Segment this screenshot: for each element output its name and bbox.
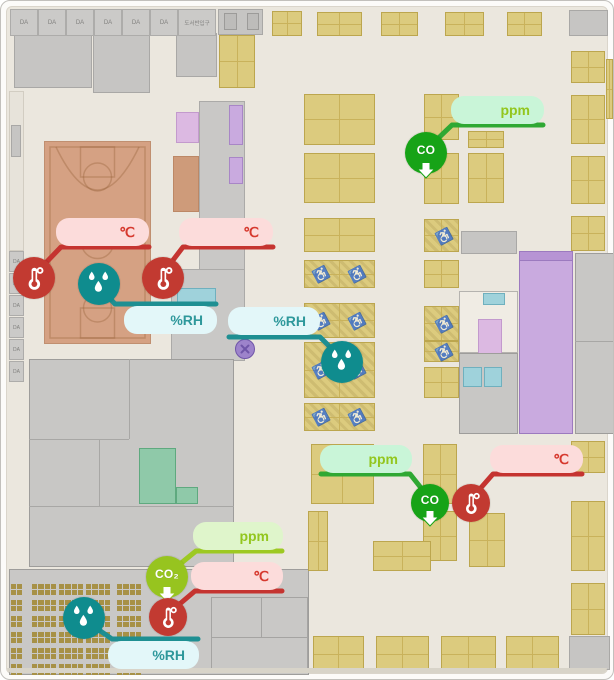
humidity-court-marker[interactable] xyxy=(78,263,120,305)
humidity-drops-icon xyxy=(85,270,113,298)
humidity-court-value-bubble[interactable]: %RH xyxy=(124,306,217,334)
down-arrow-icon xyxy=(420,510,440,527)
thermometer-icon xyxy=(458,490,484,516)
co-reading-room-bottom-marker[interactable]: CO xyxy=(411,484,449,522)
temp-court-right-value-bubble[interactable]: ℃ xyxy=(179,218,273,246)
humidity-reading-room-value-bubble[interactable]: %RH xyxy=(228,307,320,335)
temp-hall-value-bubble[interactable]: ℃ xyxy=(191,562,283,590)
temp-court-left-marker[interactable] xyxy=(13,257,55,299)
co2-hall-marker[interactable]: CO₂ xyxy=(146,556,188,598)
bottom-band xyxy=(7,668,607,673)
co-label: CO xyxy=(417,144,435,156)
humidity-drops-icon xyxy=(328,348,356,376)
floorplan-background: DADADADADADA도서반입구DADPDADADADA ♿♿♿♿♿♿♿♿♿♿… xyxy=(6,6,608,674)
co-label: CO xyxy=(421,494,439,506)
co-reading-room-top-value-bubble[interactable]: ppm xyxy=(451,96,544,124)
co2-label: CO₂ xyxy=(155,568,179,580)
temp-hall-marker[interactable] xyxy=(149,598,187,636)
temp-court-right-marker[interactable] xyxy=(142,257,184,299)
humidity-hall-marker[interactable] xyxy=(63,597,105,639)
thermometer-icon xyxy=(20,264,48,292)
co-reading-room-bottom-value-bubble[interactable]: ppm xyxy=(320,445,412,473)
thermometer-icon xyxy=(149,264,177,292)
co-reading-room-top-marker[interactable]: CO xyxy=(405,132,447,174)
temp-reading-room-bottom-value-bubble[interactable]: ℃ xyxy=(490,445,583,473)
co2-hall-value-bubble[interactable]: ppm xyxy=(193,522,283,550)
temp-court-left-value-bubble[interactable]: ℃ xyxy=(56,218,149,246)
thermometer-icon xyxy=(155,604,181,630)
humidity-hall-value-bubble[interactable]: %RH xyxy=(108,641,199,669)
floorplan-canvas: DADADADADADA도서반입구DADPDADADADA ♿♿♿♿♿♿♿♿♿♿… xyxy=(0,0,614,680)
map-x-marker[interactable] xyxy=(235,339,255,359)
desk xyxy=(606,59,613,119)
humidity-reading-room-marker[interactable] xyxy=(321,341,363,383)
down-arrow-icon xyxy=(416,162,436,179)
humidity-drops-icon xyxy=(70,604,98,632)
temp-reading-room-bottom-marker[interactable] xyxy=(452,484,490,522)
